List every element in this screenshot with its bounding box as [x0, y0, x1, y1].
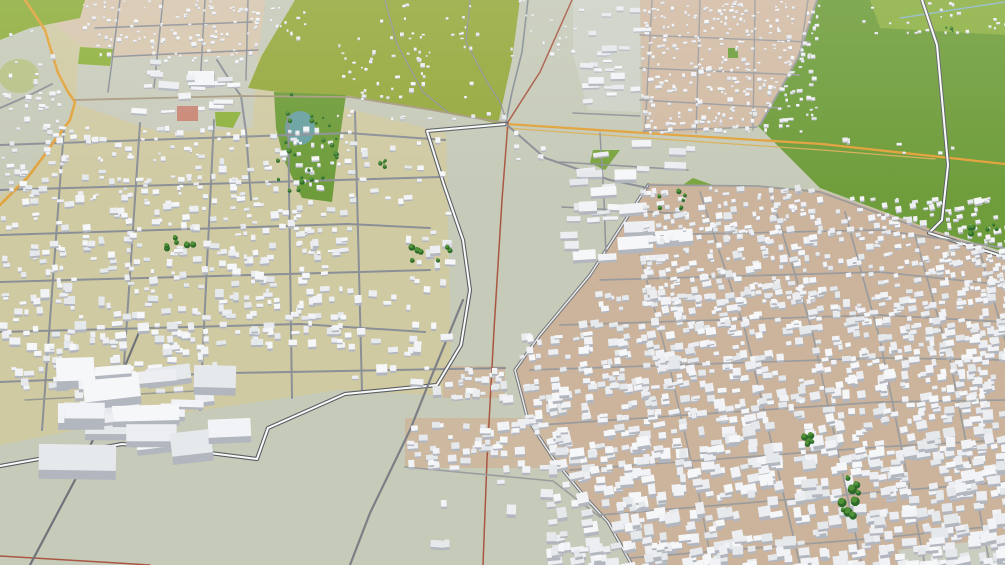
- city-3d-render: [0, 0, 1005, 565]
- haze-overlay: [0, 0, 1005, 565]
- city-3d-scene: [0, 0, 1005, 565]
